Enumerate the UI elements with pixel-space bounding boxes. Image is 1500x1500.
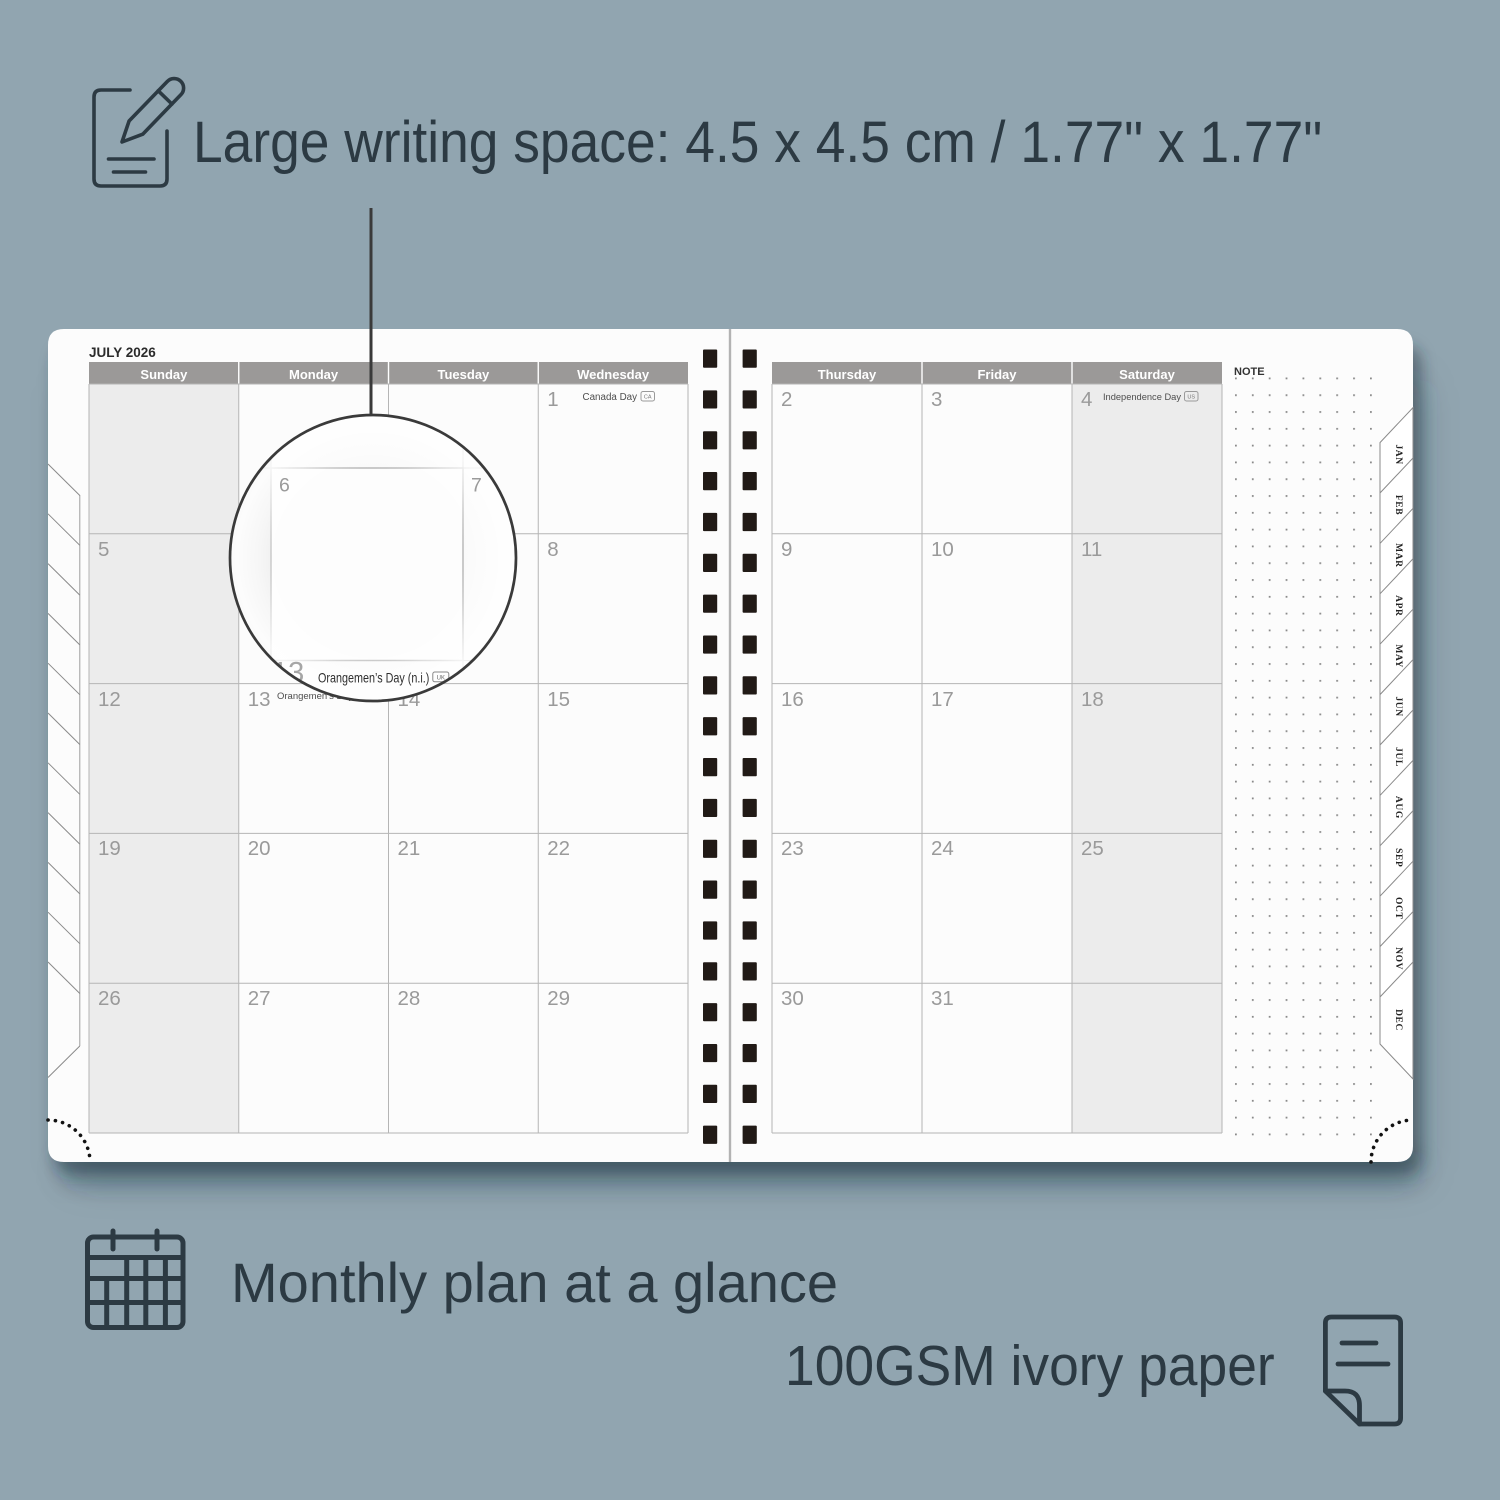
svg-text:7: 7 xyxy=(471,475,482,497)
svg-text:21: 21 xyxy=(398,837,421,860)
svg-text:16: 16 xyxy=(781,688,804,711)
svg-text:28: 28 xyxy=(398,987,421,1010)
svg-text:DEC: DEC xyxy=(1393,1009,1403,1031)
svg-text:29: 29 xyxy=(547,987,570,1010)
svg-text:9: 9 xyxy=(781,538,792,561)
svg-text:6: 6 xyxy=(279,475,290,497)
svg-text:11: 11 xyxy=(1081,538,1102,561)
svg-text:JAN: JAN xyxy=(1393,444,1403,464)
svg-text:31: 31 xyxy=(931,987,954,1010)
svg-text:13: 13 xyxy=(248,688,271,711)
svg-text:24: 24 xyxy=(931,837,954,860)
svg-text:17: 17 xyxy=(931,688,954,711)
svg-text:Orangemen’s Day (n.i.): Orangemen’s Day (n.i.) xyxy=(318,670,429,685)
svg-text:Monday: Monday xyxy=(289,367,339,382)
svg-text:NOTE: NOTE xyxy=(1234,366,1265,378)
svg-text:2: 2 xyxy=(781,388,792,411)
svg-text:Canada Day: Canada Day xyxy=(583,392,638,403)
svg-text:Friday: Friday xyxy=(977,367,1017,382)
svg-text:SEP: SEP xyxy=(1393,848,1403,867)
svg-text:12: 12 xyxy=(98,688,121,711)
svg-text:AUG: AUG xyxy=(1393,796,1403,819)
svg-text:Saturday: Saturday xyxy=(1119,367,1175,382)
svg-text:NOV: NOV xyxy=(1393,947,1403,970)
svg-text:23: 23 xyxy=(781,837,804,860)
svg-text:Large writing space: 4.5 x 4.5: Large writing space: 4.5 x 4.5 cm / 1.77… xyxy=(193,110,1322,175)
svg-text:Independence Day: Independence Day xyxy=(1103,392,1181,402)
svg-text:US: US xyxy=(1187,395,1195,401)
svg-text:Monthly plan at a glance: Monthly plan at a glance xyxy=(231,1251,838,1314)
svg-text:JUL: JUL xyxy=(1393,747,1403,767)
svg-text:Thursday: Thursday xyxy=(818,367,877,382)
svg-text:10: 10 xyxy=(931,538,954,561)
svg-text:JUN: JUN xyxy=(1393,696,1403,716)
svg-text:JULY 2026: JULY 2026 xyxy=(89,345,156,360)
svg-text:MAR: MAR xyxy=(1393,543,1403,568)
svg-text:FEB: FEB xyxy=(1393,495,1403,515)
svg-text:OCT: OCT xyxy=(1393,897,1403,919)
svg-text:27: 27 xyxy=(248,987,271,1010)
svg-text:MAY: MAY xyxy=(1393,644,1403,668)
svg-text:15: 15 xyxy=(547,688,570,711)
svg-text:1: 1 xyxy=(547,388,558,411)
svg-text:4: 4 xyxy=(1081,388,1092,411)
svg-text:APR: APR xyxy=(1393,595,1403,616)
svg-text:22: 22 xyxy=(547,837,570,860)
svg-text:25: 25 xyxy=(1081,837,1104,860)
svg-text:Sunday: Sunday xyxy=(140,367,188,382)
svg-text:CA: CA xyxy=(644,395,652,401)
svg-text:19: 19 xyxy=(98,837,121,860)
svg-text:20: 20 xyxy=(248,837,271,860)
svg-text:Wednesday: Wednesday xyxy=(577,367,650,382)
svg-text:UK: UK xyxy=(437,676,445,682)
svg-text:26: 26 xyxy=(98,987,121,1010)
svg-text:100GSM ivory paper: 100GSM ivory paper xyxy=(785,1333,1275,1397)
svg-text:5: 5 xyxy=(98,538,109,561)
svg-text:30: 30 xyxy=(781,987,804,1010)
svg-text:3: 3 xyxy=(931,388,942,411)
svg-text:Tuesday: Tuesday xyxy=(438,367,491,382)
svg-text:18: 18 xyxy=(1081,688,1104,711)
svg-text:8: 8 xyxy=(547,538,558,561)
